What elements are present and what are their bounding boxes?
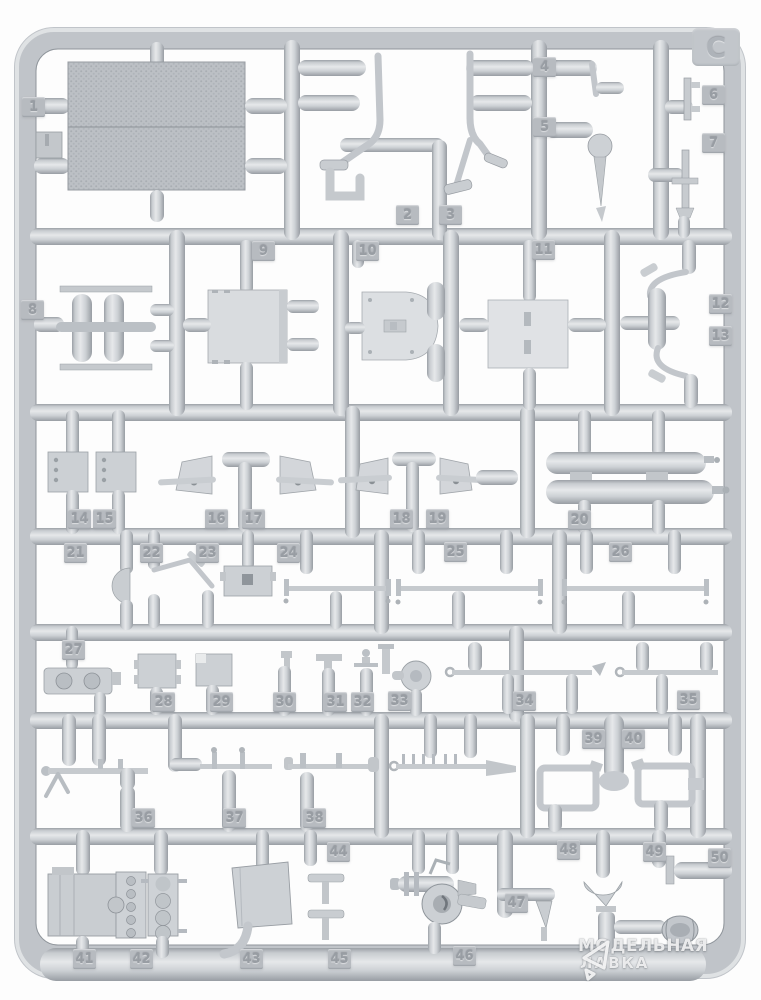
part-number-tag: 38 xyxy=(303,808,326,828)
part-number-tag: 43 xyxy=(240,949,263,969)
part-number-tag: 12 xyxy=(709,294,732,314)
part-number-tag: 11 xyxy=(532,240,555,260)
part-number-tag: 42 xyxy=(130,949,153,969)
part-number-tag: 6 xyxy=(702,85,725,105)
part-number-tag: 8 xyxy=(21,300,44,320)
part-number-tag: 9 xyxy=(252,241,275,261)
part-number-tag: 37 xyxy=(223,808,246,828)
part-number-tag: 14 xyxy=(68,509,91,529)
part-number-tag: 24 xyxy=(277,543,300,563)
part-number-tag: 44 xyxy=(327,842,350,862)
part-number-tag: 40 xyxy=(622,729,645,749)
part-number-tag: 45 xyxy=(328,949,351,969)
part-number-tag: 36 xyxy=(132,808,155,828)
watermark: МОДЕЛЬНАЯ ЛАВКА xyxy=(578,938,708,972)
part-number-tag: 22 xyxy=(140,543,163,563)
part-number-tag: 35 xyxy=(677,690,700,710)
part-number-tag: 3 xyxy=(439,205,462,225)
part-number-tag: 5 xyxy=(533,117,556,137)
part-number-tag: 21 xyxy=(64,543,87,563)
part-number-tag: 18 xyxy=(390,509,413,529)
part-number-tag: 48 xyxy=(557,840,580,860)
part-number-tag: 29 xyxy=(210,692,233,712)
part-number-tag: 15 xyxy=(93,509,116,529)
part-number-tag: 25 xyxy=(444,542,467,562)
part-number-tag: 31 xyxy=(324,692,347,712)
part-number-tag: 47 xyxy=(505,893,528,913)
part-number-tag: 33 xyxy=(388,691,411,711)
part-number-tag: 39 xyxy=(582,729,605,749)
part-number-tag: 19 xyxy=(426,509,449,529)
part-number-tag: 41 xyxy=(73,949,96,969)
part-number-tag: 30 xyxy=(273,692,296,712)
part-number-tag: 4 xyxy=(533,57,556,77)
part-number-tag: 23 xyxy=(196,543,219,563)
part-number-tag: 50 xyxy=(708,848,731,868)
part-number-tag: 13 xyxy=(709,326,732,346)
modelnaya-lavka-triangle-logo xyxy=(578,938,614,982)
part-number-tag: 17 xyxy=(242,509,265,529)
part-number-tag: 34 xyxy=(513,691,536,711)
part-number-tag: 2 xyxy=(396,205,419,225)
part-number-tag: 10 xyxy=(356,241,379,261)
part-number-tag: 49 xyxy=(643,842,666,862)
part-number-tag: 20 xyxy=(568,510,591,530)
part-number-tag: 16 xyxy=(205,509,228,529)
part-number-tag: 26 xyxy=(609,542,632,562)
part-number-tag: 7 xyxy=(702,133,725,153)
part-number-tag: 27 xyxy=(62,640,85,660)
part-number-tag: 1 xyxy=(22,97,45,117)
part-number-tag: 32 xyxy=(351,692,374,712)
sprue-letter-tag: C xyxy=(692,28,740,66)
part-number-tag: 28 xyxy=(152,692,175,712)
sprue-photo: 1234567891011121314151617181920212223242… xyxy=(0,0,761,1000)
part-number-tag: 46 xyxy=(453,946,476,966)
